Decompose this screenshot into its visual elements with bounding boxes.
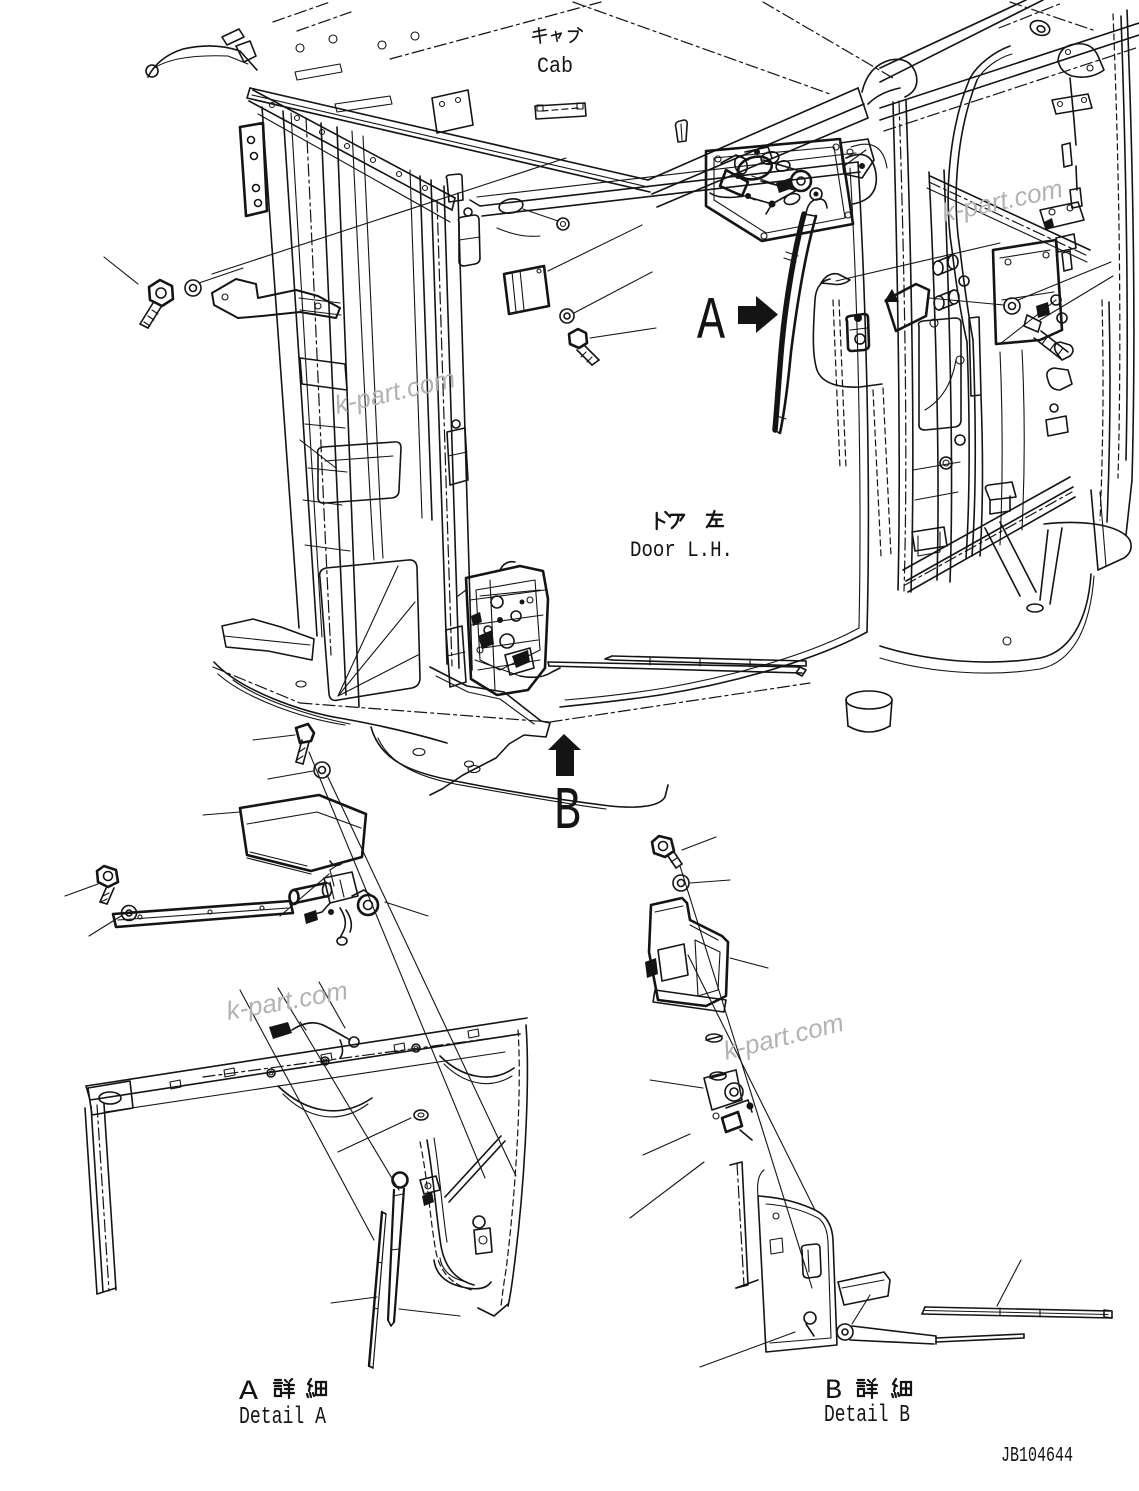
svg-text:JB104644: JB104644 <box>1001 1445 1073 1468</box>
svg-text:Cab: Cab <box>537 54 573 79</box>
svg-text:Door L.H.: Door L.H. <box>630 538 733 563</box>
svg-text:Detail B: Detail B <box>824 1402 910 1429</box>
svg-text:k-part.com: k-part.com <box>224 975 350 1026</box>
svg-text:k-part.com: k-part.com <box>720 1007 846 1066</box>
svg-text:Detail A: Detail A <box>239 1404 326 1431</box>
svg-text:A: A <box>697 289 725 357</box>
svg-text:B: B <box>554 779 581 847</box>
svg-text:k-part.com: k-part.com <box>939 173 1065 228</box>
